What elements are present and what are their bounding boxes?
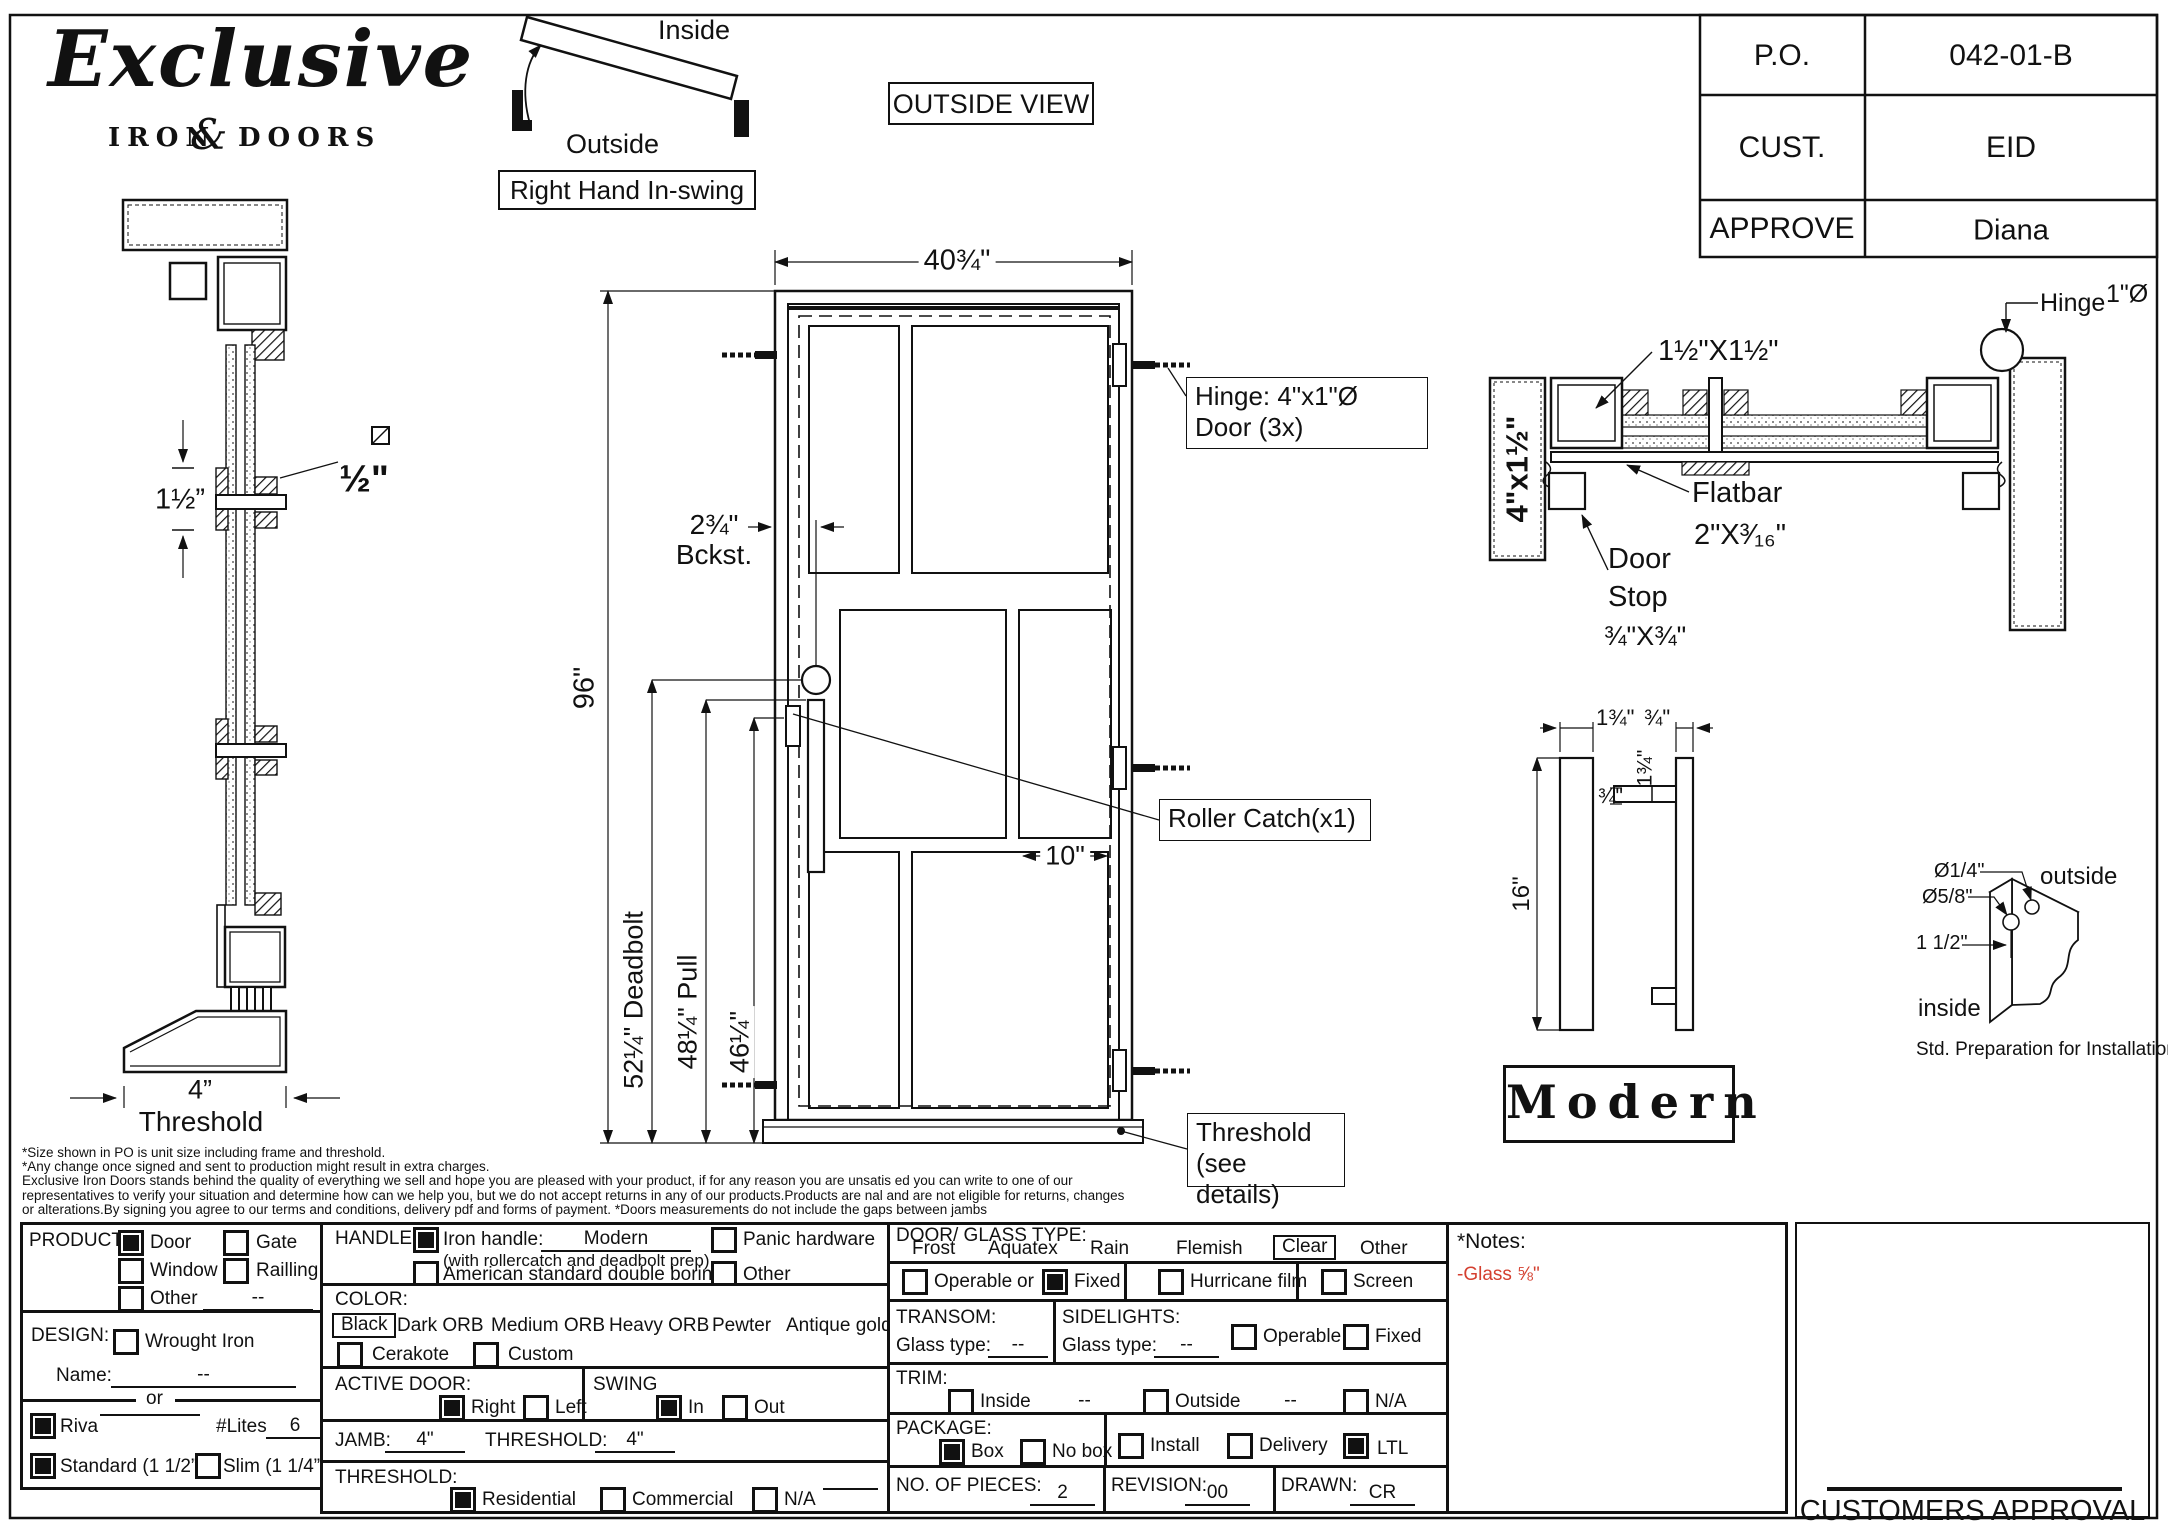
view-title-box: OUTSIDE VIEW bbox=[888, 82, 1094, 125]
swing-caption-box: Right Hand In-swing bbox=[498, 170, 756, 210]
trim-na-label: N/A bbox=[1375, 1392, 1407, 1412]
swing-out-label: Out bbox=[754, 1398, 785, 1418]
handle-other-label: Other bbox=[743, 1265, 791, 1285]
iron-handle-label: Iron handle: bbox=[443, 1230, 543, 1250]
design-name-label: Name: bbox=[56, 1366, 112, 1386]
glass-type-section: DOOR/ GLASS TYPE: Frost Aquatex Rain Fle… bbox=[887, 1222, 1449, 1302]
lite-width-dim: 10" bbox=[1040, 841, 1090, 870]
mullion-dim: 1½” bbox=[150, 484, 210, 515]
po-value: 042-01-B bbox=[1949, 40, 2072, 72]
pull-height-dim: 48¼" Pull bbox=[673, 950, 702, 1075]
trim-section: TRIM: Inside -- Outside -- N/A bbox=[887, 1362, 1449, 1415]
pieces-section: NO. OF PIECES: 2 REVISION: 00 DRAWN: CR bbox=[887, 1465, 1449, 1514]
glass-rain[interactable]: Rain bbox=[1090, 1239, 1129, 1259]
handle-standoff-dim-1: 1¾" bbox=[1635, 750, 1658, 787]
transom-glass-value[interactable]: -- bbox=[988, 1334, 1048, 1358]
prep-hole-front: Ø1/4" bbox=[1934, 861, 1984, 883]
color-dark-orb[interactable]: Dark ORB bbox=[397, 1316, 484, 1336]
flatbar-dim: 2"X³⁄₁₆" bbox=[1694, 520, 1786, 551]
checkbox-residential[interactable] bbox=[450, 1487, 476, 1513]
vertical-section bbox=[70, 200, 389, 1108]
checkbox-commercial[interactable] bbox=[600, 1487, 626, 1513]
panic-hardware-label: Panic hardware bbox=[743, 1230, 875, 1250]
product-title: PRODUCT: bbox=[29, 1231, 126, 1251]
cust-label: CUST. bbox=[1739, 132, 1826, 164]
sidelights-glass-value[interactable]: -- bbox=[1154, 1334, 1219, 1358]
backset-dim: 2¾"Bckst. bbox=[668, 510, 760, 570]
checkbox-panic-hardware[interactable] bbox=[711, 1227, 737, 1253]
swing-outside-label: Outside bbox=[566, 130, 659, 159]
glass-clear[interactable]: Clear bbox=[1273, 1235, 1336, 1260]
design-or-label: or bbox=[146, 1389, 163, 1409]
checkbox-slim[interactable] bbox=[195, 1453, 221, 1479]
active-door-section: ACTIVE DOOR: Right Left SWING In Out bbox=[320, 1366, 890, 1422]
package-section: PACKAGE: Box No box Install Delivery LTL bbox=[887, 1412, 1449, 1468]
hinge-label: Hinge bbox=[2040, 290, 2105, 317]
trim-outside-value[interactable]: -- bbox=[1248, 1390, 1333, 1414]
residential-label: Residential bbox=[482, 1490, 576, 1510]
swing-title: SWING bbox=[593, 1375, 657, 1395]
flatbar-label: Flatbar bbox=[1692, 478, 1782, 509]
jamb-threshold-value[interactable]: 4" bbox=[595, 1429, 675, 1453]
swing-in-label: In bbox=[688, 1398, 704, 1418]
transom-section: TRANSOM: Glass type: -- SIDELIGHTS: Glas… bbox=[887, 1299, 1449, 1365]
approval-label: CUSTOMERS APPROVAL bbox=[1800, 1496, 2145, 1526]
sidelights-operable-label: Operable bbox=[1263, 1327, 1341, 1347]
american-boring-label: American standard double boring bbox=[443, 1265, 723, 1285]
riva-label: Riva bbox=[60, 1417, 98, 1437]
notes-section: *Notes: -Glass ⅝" bbox=[1446, 1222, 1788, 1514]
checkbox-delivery[interactable] bbox=[1227, 1433, 1253, 1459]
sidelights-fixed-label: Fixed bbox=[1375, 1327, 1421, 1347]
color-antique-gold[interactable]: Antique gold bbox=[786, 1316, 892, 1336]
doorstop-label-2: Stop bbox=[1608, 582, 1668, 613]
checkbox-hurricane-film[interactable] bbox=[1158, 1269, 1184, 1295]
doorstop-label-1: Door bbox=[1608, 544, 1671, 575]
handle-height-dim: 16" bbox=[1509, 876, 1535, 911]
sidelights-glass-label: Glass type: bbox=[1062, 1336, 1157, 1356]
standard-label: Standard (1 1/2”) bbox=[60, 1457, 204, 1477]
product-gate-label: Gate bbox=[256, 1233, 297, 1253]
checkbox-install[interactable] bbox=[1118, 1433, 1144, 1459]
design-name-value[interactable]: -- bbox=[111, 1364, 296, 1388]
disclaimer: *Size shown in PO is unit size including… bbox=[22, 1146, 1124, 1217]
pull-handle bbox=[808, 700, 824, 872]
checkbox-custom-color[interactable] bbox=[473, 1342, 499, 1368]
drawn-label: DRAWN: bbox=[1281, 1476, 1357, 1496]
checkbox-swing-out[interactable] bbox=[722, 1395, 748, 1421]
package-nobox-label: No box bbox=[1052, 1442, 1112, 1462]
pieces-divider-1 bbox=[1103, 1468, 1106, 1511]
custom-color-label: Custom bbox=[508, 1345, 573, 1365]
package-title: PACKAGE: bbox=[896, 1419, 992, 1439]
glass-flemish[interactable]: Flemish bbox=[1176, 1239, 1243, 1259]
glass-or-label: or bbox=[1017, 1272, 1034, 1292]
color-section: COLOR: Black Dark ORB Medium ORB Heavy O… bbox=[320, 1283, 890, 1369]
trim-inside-label: Inside bbox=[980, 1392, 1031, 1412]
wrought-iron-label: Wrought Iron bbox=[145, 1332, 254, 1352]
product-section: PRODUCT: Door Gate Window Railling Other… bbox=[20, 1222, 325, 1313]
approve-value: Diana bbox=[1973, 215, 2049, 246]
checkbox-sidelights-operable[interactable] bbox=[1231, 1324, 1257, 1350]
checkbox-product-window[interactable] bbox=[118, 1258, 144, 1284]
jamb-size-dim: 4"x1½" bbox=[1500, 416, 1533, 523]
install-label: Install bbox=[1150, 1436, 1200, 1456]
handle-bar-depth-dim: ¾" bbox=[1644, 706, 1670, 730]
jamb-threshold-label: THRESHOLD: bbox=[485, 1431, 607, 1451]
active-right-label: Right bbox=[471, 1398, 515, 1418]
transom-glass-label: Glass type: bbox=[896, 1336, 991, 1356]
threshold-na-value[interactable] bbox=[823, 1488, 878, 1490]
screen-label: Screen bbox=[1353, 1272, 1413, 1292]
prep-outside-label: outside bbox=[2040, 864, 2117, 890]
leaders bbox=[793, 368, 1187, 1149]
jamb-label: JAMB: bbox=[335, 1431, 391, 1451]
deadbolt-prep bbox=[802, 666, 830, 694]
prep-hole-back: Ø5/8" bbox=[1922, 887, 1972, 909]
bar-dim: ½" bbox=[339, 459, 389, 500]
prep-offset: 1 1/2" bbox=[1916, 933, 1968, 955]
checkbox-threshold-na[interactable] bbox=[752, 1487, 778, 1513]
drawing-sheet: Exclusive IRON & DOORS Inside Outside Ri… bbox=[0, 0, 2168, 1526]
cerakote-label: Cerakote bbox=[372, 1345, 449, 1365]
threshold-width-dim: 4” bbox=[188, 1075, 212, 1104]
approve-label: APPROVE bbox=[1709, 213, 1854, 245]
pieces-label: NO. OF PIECES: bbox=[896, 1476, 1042, 1496]
checkbox-glass-fixed[interactable] bbox=[1042, 1269, 1068, 1295]
threshold-label: Threshold bbox=[139, 1107, 264, 1137]
glass-fixed-label: Fixed bbox=[1074, 1272, 1120, 1292]
hinge-note-box: Hinge: 4"x1"ØDoor (3x) bbox=[1186, 377, 1428, 449]
design-section: DESIGN: Wrought Iron Name: -- or Riva #L… bbox=[20, 1310, 325, 1490]
handle-title: HANDLE: bbox=[335, 1229, 417, 1249]
handle-standoff-dim-2: ¾" bbox=[1598, 786, 1623, 809]
checkbox-ltl[interactable] bbox=[1343, 1433, 1369, 1459]
trim-title: TRIM: bbox=[896, 1369, 948, 1389]
door-height-dim: 96" bbox=[569, 667, 600, 710]
checkbox-riva[interactable] bbox=[30, 1413, 56, 1439]
product-other-label: Other bbox=[150, 1289, 198, 1309]
handle-bar-width-dim: 1¾" bbox=[1596, 706, 1634, 730]
catch-height-dim: 46¼" bbox=[725, 1006, 754, 1078]
product-door-label: Door bbox=[150, 1233, 191, 1253]
trim-outside-label: Outside bbox=[1175, 1392, 1240, 1412]
door-width-dim: 40¾" bbox=[919, 245, 996, 276]
prep-inside-label: inside bbox=[1918, 996, 1981, 1022]
color-heavy-orb[interactable]: Heavy ORB bbox=[609, 1316, 709, 1336]
checkbox-product-gate[interactable] bbox=[223, 1230, 249, 1256]
checkbox-product-railling[interactable] bbox=[223, 1258, 249, 1284]
glass-divider-1 bbox=[1124, 1261, 1127, 1299]
design-title: DESIGN: bbox=[31, 1326, 109, 1346]
logo-script: Exclusive bbox=[48, 18, 474, 102]
product-other-value[interactable]: -- bbox=[203, 1287, 313, 1311]
hurricane-film-label: Hurricane film bbox=[1190, 1272, 1307, 1292]
hinge-diameter: 1"Ø bbox=[2106, 281, 2148, 308]
signature-line[interactable] bbox=[1827, 1487, 2122, 1491]
tube-size-dim: 1½"X1½" bbox=[1658, 336, 1779, 367]
pieces-divider-2 bbox=[1273, 1468, 1276, 1511]
glass-frost[interactable]: Frost bbox=[912, 1239, 955, 1259]
checkbox-active-left[interactable] bbox=[523, 1395, 549, 1421]
threshold-na-label: N/A bbox=[784, 1490, 816, 1510]
threshold-note-box: Threshold(see details) bbox=[1187, 1113, 1345, 1187]
door-elevation bbox=[722, 291, 1190, 1143]
cust-value: EID bbox=[1986, 132, 2036, 164]
prep-caption: Std. Preparation for Installation bbox=[1916, 1040, 2168, 1061]
glass-aquatex[interactable]: Aquatex bbox=[988, 1239, 1058, 1259]
sidelights-title: SIDELIGHTS: bbox=[1062, 1308, 1180, 1328]
color-black[interactable]: Black bbox=[332, 1313, 396, 1338]
checkbox-product-door[interactable] bbox=[118, 1230, 144, 1256]
logo-ampersand-icon: & bbox=[190, 112, 227, 157]
delivery-label: Delivery bbox=[1259, 1436, 1328, 1456]
commercial-label: Commercial bbox=[632, 1490, 733, 1510]
glass-other[interactable]: Other bbox=[1360, 1239, 1408, 1259]
revision-value[interactable]: 00 bbox=[1185, 1482, 1250, 1506]
po-label: P.O. bbox=[1754, 40, 1810, 72]
checkbox-product-other[interactable] bbox=[118, 1286, 144, 1312]
checkbox-standard[interactable] bbox=[30, 1453, 56, 1479]
handle-section: HANDLE: Iron handle: Modern (with roller… bbox=[320, 1222, 890, 1286]
handle-style-box: Modern bbox=[1503, 1065, 1735, 1143]
product-railling-label: Railling bbox=[256, 1261, 318, 1281]
handle-detail bbox=[1537, 722, 1713, 1030]
jamb-value[interactable]: 4" bbox=[385, 1429, 465, 1453]
checkbox-wrought-iron[interactable] bbox=[113, 1329, 139, 1355]
jamb-section: JAMB: 4" THRESHOLD: 4" bbox=[320, 1419, 890, 1463]
checkbox-glass-operable[interactable] bbox=[902, 1269, 928, 1295]
transom-divider bbox=[1053, 1302, 1056, 1362]
glass-operable-label: Operable bbox=[934, 1272, 1012, 1292]
ltl-label: LTL bbox=[1377, 1439, 1408, 1459]
approval-section: CUSTOMERS APPROVAL bbox=[1795, 1222, 2150, 1518]
threshold-bar bbox=[763, 1120, 1143, 1143]
checkbox-sidelights-fixed[interactable] bbox=[1343, 1324, 1369, 1350]
active-left-label: Left bbox=[555, 1398, 587, 1418]
checkbox-cerakote[interactable] bbox=[337, 1342, 363, 1368]
checkbox-package-nobox[interactable] bbox=[1020, 1439, 1046, 1465]
logo-word-doors: DOORS bbox=[238, 124, 381, 152]
color-medium-orb[interactable]: Medium ORB bbox=[491, 1316, 605, 1336]
trim-inside-value[interactable]: -- bbox=[1042, 1390, 1127, 1414]
package-box-label: Box bbox=[971, 1442, 1004, 1462]
threshold-section: THRESHOLD: Residential Commercial N/A bbox=[320, 1460, 890, 1514]
iron-handle-value[interactable]: Modern bbox=[541, 1228, 691, 1252]
color-pewter[interactable]: Pewter bbox=[712, 1316, 771, 1336]
glass-row-divider bbox=[890, 1261, 1446, 1264]
pieces-value[interactable]: 2 bbox=[1030, 1482, 1095, 1506]
transom-title: TRANSOM: bbox=[896, 1308, 996, 1328]
checkbox-swing-in[interactable] bbox=[656, 1395, 682, 1421]
notes-glass-note: -Glass ⅝" bbox=[1457, 1265, 1540, 1285]
color-title: COLOR: bbox=[335, 1290, 408, 1310]
doorstop-dim: ¾"X¾" bbox=[1604, 622, 1686, 651]
lites-label: #Lites bbox=[216, 1417, 267, 1437]
drawn-value[interactable]: CR bbox=[1350, 1482, 1415, 1506]
checkbox-active-right[interactable] bbox=[439, 1395, 465, 1421]
checkbox-iron-handle[interactable] bbox=[413, 1227, 439, 1253]
lites-value[interactable]: 6 bbox=[266, 1415, 324, 1439]
active-door-title: ACTIVE DOOR: bbox=[335, 1375, 471, 1395]
product-window-label: Window bbox=[150, 1261, 218, 1281]
roller-note-box: Roller Catch(x1) bbox=[1159, 799, 1371, 841]
slim-label: Slim (1 1/4”) bbox=[223, 1457, 326, 1477]
notes-title: *Notes: bbox=[1457, 1231, 1526, 1253]
threshold-title: THRESHOLD: bbox=[335, 1468, 457, 1488]
swing-inside-label: Inside bbox=[658, 16, 730, 45]
checkbox-package-box[interactable] bbox=[939, 1439, 965, 1465]
roller-catch bbox=[786, 706, 800, 746]
checkbox-screen[interactable] bbox=[1321, 1269, 1347, 1295]
deadbolt-height-dim: 52¼" Deadbolt bbox=[619, 906, 648, 1094]
